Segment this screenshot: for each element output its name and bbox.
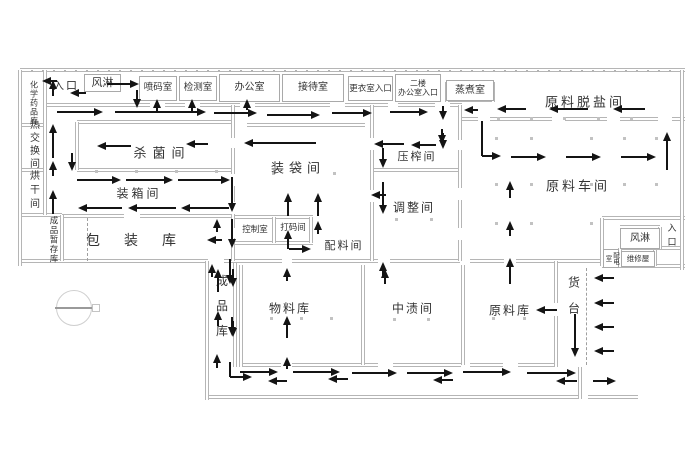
wall-segment bbox=[60, 215, 64, 261]
wall-segment bbox=[239, 265, 243, 367]
flow-arrow bbox=[463, 371, 504, 373]
flow-arrow bbox=[217, 276, 219, 292]
flow-arrowhead bbox=[537, 153, 546, 161]
flow-arrow bbox=[481, 121, 483, 156]
wall-segment bbox=[77, 120, 235, 124]
room-inspection-room: 检测室 bbox=[179, 76, 217, 101]
flow-arrow bbox=[57, 111, 96, 113]
wall-segment bbox=[370, 150, 374, 190]
flow-arrow bbox=[509, 265, 511, 284]
flow-arrow bbox=[566, 156, 594, 158]
flow-arrowhead bbox=[594, 347, 603, 355]
column-marker bbox=[333, 172, 336, 175]
column-marker bbox=[530, 183, 533, 186]
flow-arrow bbox=[115, 111, 199, 113]
flow-arrow bbox=[352, 372, 390, 374]
wall-segment bbox=[398, 103, 435, 107]
flow-arrow bbox=[381, 143, 404, 145]
flow-arrowhead bbox=[302, 245, 311, 253]
flow-arrowhead bbox=[207, 236, 216, 244]
flow-arrowhead bbox=[497, 105, 506, 113]
flow-arrow bbox=[240, 371, 271, 373]
flow-arrowhead bbox=[269, 368, 278, 376]
flow-arrowhead bbox=[411, 141, 420, 149]
flow-arrowhead bbox=[283, 357, 291, 366]
room-label-packaging-warehouse: 包装库 bbox=[86, 230, 200, 250]
flow-arrowhead bbox=[363, 109, 372, 117]
flow-arrowhead bbox=[229, 278, 237, 287]
flow-arrow bbox=[52, 197, 54, 214]
room-power-distribution-room: 配电室 bbox=[603, 249, 619, 268]
room-label-mid-pickling-room: 中渍间 bbox=[392, 300, 434, 317]
flow-arrowhead bbox=[49, 161, 57, 170]
flow-arrow bbox=[52, 131, 54, 158]
column-marker bbox=[530, 117, 533, 120]
column-marker bbox=[597, 117, 600, 120]
room-label-drying-room: 烘干间 bbox=[26, 170, 41, 212]
flow-arrowhead bbox=[42, 77, 51, 85]
column-marker bbox=[393, 318, 396, 321]
flow-arrow bbox=[193, 143, 208, 145]
flow-arrowhead bbox=[328, 375, 337, 383]
flow-arrowhead bbox=[164, 176, 173, 184]
flow-arrow bbox=[188, 207, 229, 209]
flow-arrow bbox=[126, 179, 166, 181]
wall-segment bbox=[272, 217, 276, 243]
column-marker bbox=[430, 218, 433, 221]
room-second-floor-office-entrance: 二楼 办公室入口 bbox=[395, 74, 441, 102]
flow-arrowhead bbox=[314, 193, 322, 202]
flow-arrow bbox=[527, 372, 569, 374]
flow-arrowhead bbox=[613, 105, 622, 113]
flow-arrow bbox=[77, 179, 114, 181]
wall-segment bbox=[602, 216, 685, 220]
wall-segment bbox=[588, 395, 638, 399]
flow-arrowhead bbox=[70, 89, 79, 97]
wall-segment bbox=[460, 117, 478, 121]
flow-arrowhead bbox=[283, 268, 291, 277]
column-marker bbox=[623, 183, 626, 186]
wall-segment bbox=[165, 103, 185, 107]
column-marker bbox=[530, 222, 533, 225]
flow-arrowhead bbox=[243, 99, 251, 108]
room-label-bagging-room: 装袋间 bbox=[271, 158, 325, 177]
flow-arrowhead bbox=[94, 108, 103, 116]
wall-segment bbox=[554, 316, 558, 367]
flow-arrow bbox=[332, 112, 365, 114]
wall-segment bbox=[554, 261, 558, 303]
room-label-material-warehouse: 物料库 bbox=[269, 300, 311, 317]
room-label-raw-material-warehouse: 原料库 bbox=[489, 302, 531, 319]
flow-arrowhead bbox=[213, 219, 221, 228]
flow-arrow bbox=[556, 108, 588, 110]
flow-arrowhead bbox=[438, 135, 446, 144]
flow-arrowhead bbox=[228, 239, 236, 248]
room-steaming-room: 蒸煮室 bbox=[446, 80, 494, 101]
column-marker bbox=[530, 137, 533, 140]
flow-arrowhead bbox=[379, 159, 387, 168]
flow-arrowhead bbox=[153, 99, 161, 108]
flow-arrow bbox=[620, 108, 645, 110]
column-marker bbox=[427, 318, 430, 321]
flow-arrowhead bbox=[268, 377, 277, 385]
wall-segment bbox=[77, 168, 235, 172]
wall-segment bbox=[458, 240, 462, 261]
flow-arrowhead bbox=[181, 204, 190, 212]
flow-arrowhead bbox=[607, 377, 616, 385]
room-label-adjustment-room: 调整间 bbox=[393, 199, 435, 216]
flow-arrowhead bbox=[283, 316, 291, 325]
flow-arrow bbox=[621, 156, 649, 158]
flow-arrowhead bbox=[128, 204, 137, 212]
flow-arrowhead bbox=[221, 176, 230, 184]
compass-needle bbox=[55, 307, 93, 309]
flow-arrow bbox=[267, 114, 313, 116]
room-label-pressing-room: 压榨间 bbox=[398, 148, 437, 164]
flow-arrow bbox=[178, 179, 223, 181]
flow-arrowhead bbox=[243, 373, 252, 381]
flow-arrow bbox=[85, 207, 122, 209]
wall-segment bbox=[458, 150, 462, 188]
wall-segment bbox=[565, 117, 607, 121]
flow-arrow bbox=[382, 182, 384, 207]
flow-arrow bbox=[563, 380, 577, 382]
flow-arrow bbox=[511, 156, 539, 158]
room-changing-room-entrance: 更衣室入口 bbox=[348, 76, 393, 101]
wall-segment bbox=[620, 117, 658, 121]
wall-segment bbox=[516, 259, 602, 263]
wall-segment bbox=[578, 367, 582, 399]
wall-segment bbox=[241, 363, 281, 367]
column-marker bbox=[590, 222, 593, 225]
wall-segment bbox=[470, 363, 503, 367]
flow-arrowhead bbox=[571, 348, 579, 357]
flow-arrow bbox=[293, 371, 333, 373]
flow-arrowhead bbox=[213, 354, 221, 363]
flow-arrowhead bbox=[464, 106, 473, 114]
flow-arrow bbox=[407, 372, 446, 374]
flow-arrowhead bbox=[284, 230, 292, 239]
flow-arrowhead bbox=[371, 191, 380, 199]
column-marker bbox=[395, 218, 398, 221]
flow-arrowhead bbox=[49, 190, 57, 199]
flow-arrowhead bbox=[112, 176, 121, 184]
flow-arrow bbox=[107, 83, 132, 85]
column-marker bbox=[175, 170, 178, 173]
room-office: 办公室 bbox=[219, 74, 280, 102]
wall-segment bbox=[586, 268, 587, 365]
flow-arrowhead bbox=[536, 306, 545, 314]
wall-segment bbox=[370, 202, 374, 261]
column-marker bbox=[495, 183, 498, 186]
wall-segment bbox=[207, 395, 580, 399]
flow-arrowhead bbox=[197, 108, 206, 116]
flow-arrow bbox=[317, 200, 319, 216]
room-label-control-room: 控制室 bbox=[242, 223, 268, 235]
flow-arrowhead bbox=[388, 369, 397, 377]
wall-segment bbox=[18, 70, 22, 266]
room-air-shower-right: 风淋 bbox=[620, 228, 660, 249]
wall-segment bbox=[461, 265, 465, 365]
wall-segment bbox=[680, 70, 684, 270]
flow-arrowhead bbox=[433, 376, 442, 384]
flow-arrow bbox=[231, 177, 233, 205]
flow-arrowhead bbox=[381, 269, 389, 278]
room-label-packing-box-room: 装箱间 bbox=[116, 185, 161, 202]
flow-arrow bbox=[231, 219, 233, 241]
flow-arrowhead bbox=[214, 311, 222, 320]
flow-arrowhead bbox=[594, 299, 603, 307]
flow-arrowhead bbox=[314, 221, 322, 230]
flow-arrow bbox=[229, 362, 231, 377]
wall-segment bbox=[361, 265, 365, 365]
wall-segment bbox=[62, 214, 124, 218]
flow-arrow bbox=[104, 145, 131, 147]
flow-arrowhead bbox=[311, 111, 320, 119]
flow-arrowhead bbox=[567, 369, 576, 377]
flow-arrow bbox=[390, 111, 421, 113]
wall-segment bbox=[292, 259, 378, 263]
wall-segment bbox=[390, 259, 460, 263]
flow-arrowhead bbox=[594, 323, 603, 331]
wall-segment bbox=[231, 105, 235, 138]
flow-arrow bbox=[666, 139, 668, 170]
column-marker bbox=[563, 117, 566, 120]
flow-arrowhead bbox=[663, 132, 671, 141]
flow-arrowhead bbox=[248, 109, 257, 117]
column-marker bbox=[655, 137, 658, 140]
flow-arrowhead bbox=[592, 153, 601, 161]
flow-arrowhead bbox=[214, 269, 222, 278]
flow-arrowhead bbox=[78, 204, 87, 212]
wall-segment bbox=[43, 70, 47, 215]
flow-arrow bbox=[287, 200, 289, 216]
flow-arrowhead bbox=[229, 328, 237, 337]
flow-arrowhead bbox=[186, 140, 195, 148]
flow-arrowhead bbox=[647, 153, 656, 161]
wall-segment bbox=[458, 200, 462, 228]
wall-segment bbox=[309, 217, 313, 243]
room-label-entrance-right: 入口 bbox=[666, 223, 679, 251]
flow-arrowhead bbox=[97, 142, 106, 150]
flow-arrowhead bbox=[502, 368, 511, 376]
flow-arrowhead bbox=[594, 274, 603, 282]
wall-segment bbox=[374, 168, 460, 172]
flow-arrow bbox=[574, 314, 576, 350]
column-marker bbox=[655, 183, 658, 186]
flow-arrow bbox=[286, 323, 288, 338]
flow-arrowhead bbox=[68, 162, 76, 171]
flow-arrowhead bbox=[188, 99, 196, 108]
flow-arrowhead bbox=[228, 203, 236, 212]
room-maintenance-room: 维修屋 bbox=[621, 251, 655, 267]
wall-segment bbox=[518, 363, 556, 367]
flow-arrowhead bbox=[444, 369, 453, 377]
flow-arrowhead bbox=[492, 152, 501, 160]
column-marker bbox=[215, 170, 218, 173]
wall-segment bbox=[470, 259, 504, 263]
wall-segment bbox=[231, 148, 235, 174]
flow-arrow bbox=[504, 108, 526, 110]
column-marker bbox=[135, 170, 138, 173]
column-marker bbox=[590, 137, 593, 140]
flow-arrow bbox=[418, 144, 436, 146]
flow-arrowhead bbox=[506, 221, 514, 230]
floorplan-canvas: 风淋喷码室检测室办公室接待室更衣室入口二楼 办公室入口蒸煮室风淋配电室维修屋入口… bbox=[0, 0, 700, 466]
flow-arrow bbox=[543, 309, 557, 311]
column-marker bbox=[495, 222, 498, 225]
wall-segment bbox=[292, 363, 378, 367]
column-marker bbox=[495, 137, 498, 140]
room-label-heat-exchange-room: 热交换间 bbox=[26, 119, 41, 171]
room-reception-room: 接待室 bbox=[282, 74, 344, 102]
room-label-sterilization-room: 杀菌间 bbox=[133, 143, 190, 162]
wall-segment bbox=[205, 261, 209, 400]
wall-segment bbox=[20, 68, 685, 72]
flow-arrowhead bbox=[379, 205, 387, 214]
room-code-spray-room: 喷码室 bbox=[139, 76, 177, 101]
column-marker bbox=[623, 137, 626, 140]
flow-arrowhead bbox=[439, 111, 447, 120]
flow-arrow bbox=[214, 112, 250, 114]
wall-segment bbox=[345, 103, 388, 107]
flow-arrowhead bbox=[244, 139, 253, 147]
column-marker bbox=[630, 117, 633, 120]
flow-arrowhead bbox=[506, 258, 514, 267]
flow-arrow bbox=[251, 142, 316, 144]
column-marker bbox=[330, 317, 333, 320]
room-label-raw-material-workshop: 原料车间 bbox=[546, 176, 610, 195]
flow-arrowhead bbox=[133, 99, 141, 108]
wall-segment bbox=[247, 123, 365, 127]
column-marker bbox=[497, 117, 500, 120]
column-marker bbox=[270, 317, 273, 320]
flow-arrowhead bbox=[506, 181, 514, 190]
wall-segment bbox=[458, 105, 462, 140]
flow-arrowhead bbox=[549, 105, 558, 113]
wall-segment bbox=[140, 214, 235, 218]
flow-arrowhead bbox=[419, 108, 428, 116]
column-marker bbox=[95, 170, 98, 173]
column-marker bbox=[300, 317, 303, 320]
flow-arrowhead bbox=[49, 124, 57, 133]
room-label-ingredients-room: 配料间 bbox=[325, 237, 364, 253]
flow-arrowhead bbox=[130, 80, 139, 88]
room-label-finished-goods-temp-storage: 成品暂存库 bbox=[48, 216, 60, 264]
flow-arrowhead bbox=[374, 140, 383, 148]
compass-tail bbox=[92, 304, 100, 312]
flow-arrow bbox=[135, 207, 176, 209]
flow-arrowhead bbox=[556, 377, 565, 385]
wall-segment bbox=[255, 103, 330, 107]
wall-segment bbox=[393, 363, 461, 367]
flow-arrowhead bbox=[284, 193, 292, 202]
